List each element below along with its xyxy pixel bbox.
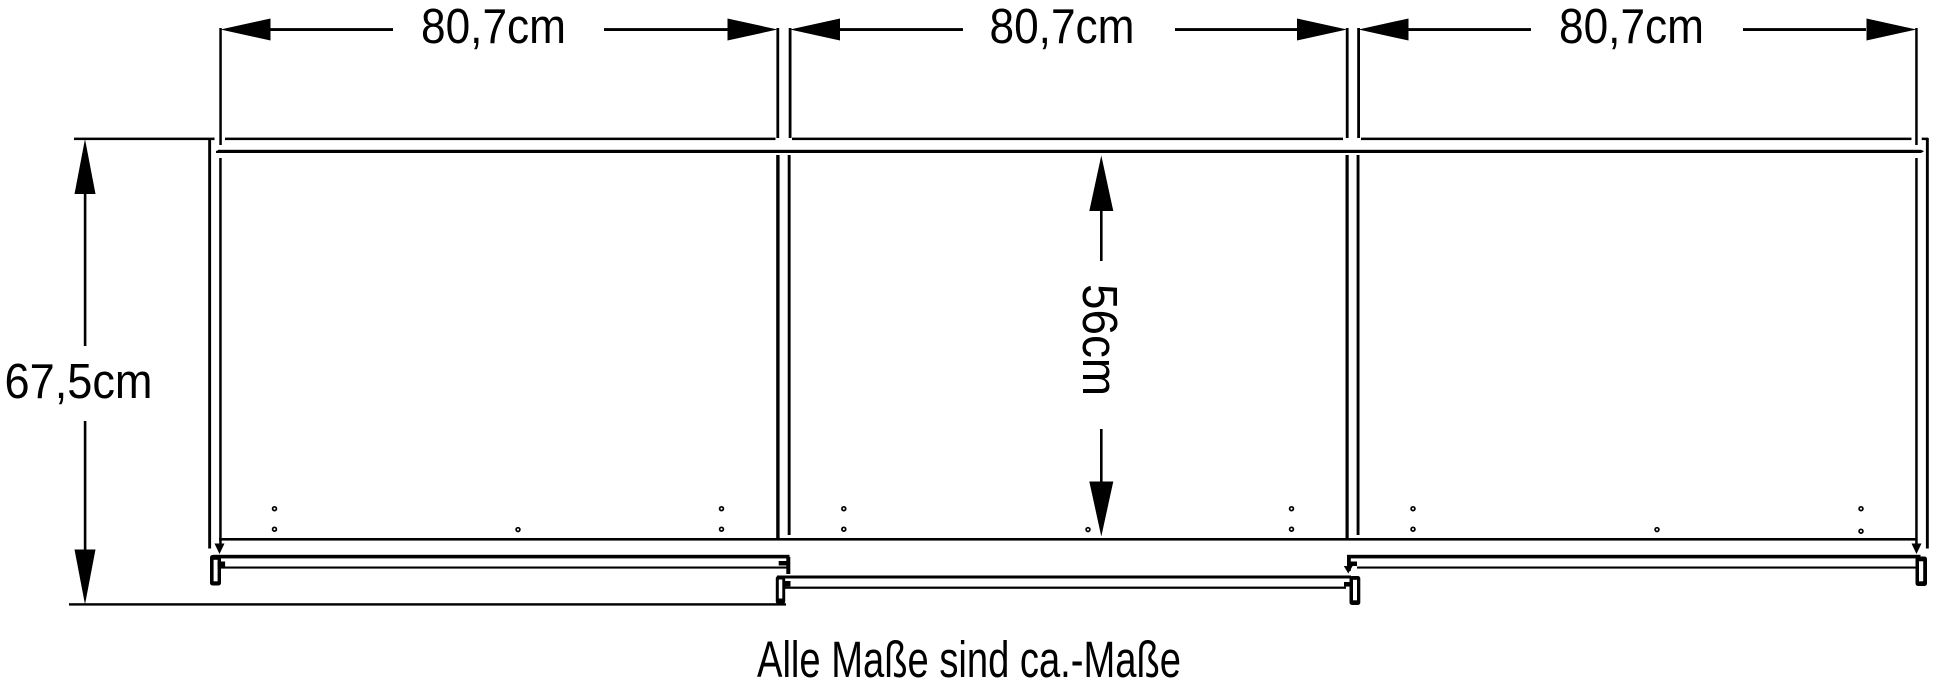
svg-text:67,5cm: 67,5cm (5, 354, 153, 409)
svg-text:80,7cm: 80,7cm (421, 0, 566, 54)
svg-text:56cm: 56cm (1072, 284, 1127, 396)
svg-text:80,7cm: 80,7cm (1559, 0, 1704, 54)
svg-text:Alle Maße sind ca.-Maße: Alle Maße sind ca.-Maße (757, 631, 1181, 683)
svg-text:80,7cm: 80,7cm (990, 0, 1135, 54)
